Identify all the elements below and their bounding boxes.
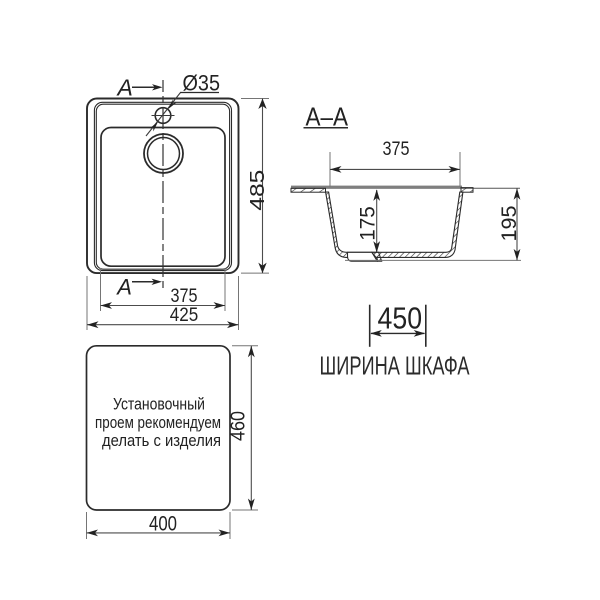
svg-text:485: 485 bbox=[247, 170, 269, 211]
svg-text:175: 175 bbox=[357, 206, 380, 241]
svg-text:425: 425 bbox=[170, 304, 199, 326]
svg-text:ШИРИНА ШКАФА: ШИРИНА ШКАФА bbox=[320, 352, 470, 380]
svg-text:375: 375 bbox=[383, 139, 410, 160]
svg-text:400: 400 bbox=[149, 512, 177, 535]
svg-text:проем рекомендуем: проем рекомендуем bbox=[95, 414, 221, 432]
svg-text:460: 460 bbox=[228, 411, 250, 441]
svg-text:A: A bbox=[116, 74, 133, 100]
svg-text:Установочный: Установочный bbox=[113, 396, 205, 414]
svg-text:450: 450 bbox=[378, 301, 423, 336]
svg-text:195: 195 bbox=[497, 205, 521, 241]
svg-text:A: A bbox=[115, 274, 132, 299]
svg-text:делать с изделия: делать с изделия bbox=[102, 432, 221, 450]
svg-text:Ø35: Ø35 bbox=[183, 70, 221, 95]
